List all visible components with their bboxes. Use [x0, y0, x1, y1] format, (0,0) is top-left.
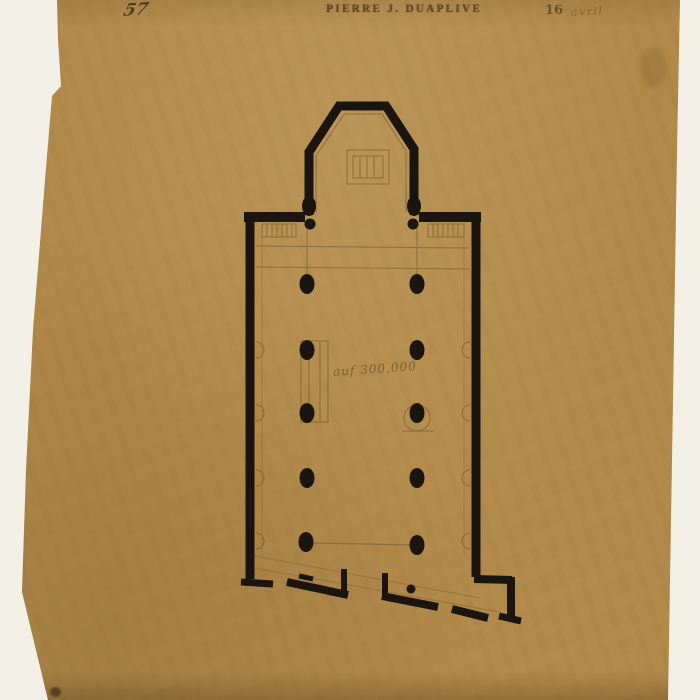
- church-floor-plan: [0, 0, 700, 700]
- right-wall-responds: [462, 342, 470, 549]
- column-row5-left: [299, 532, 314, 552]
- left-wall-foot: [241, 582, 273, 584]
- paper-smudge: [640, 48, 666, 88]
- column-row2-left: [300, 340, 315, 360]
- column-row4-left: [300, 468, 315, 488]
- facade-segment-3: [452, 609, 488, 618]
- ink-stain: [50, 687, 61, 697]
- column-row4-right: [410, 468, 425, 488]
- apse-base-pier-right: [407, 196, 421, 216]
- column-row1-right: [410, 274, 425, 294]
- chancel-opening-knob-left: [305, 219, 316, 230]
- altar-inner-outline: [353, 156, 383, 178]
- facade-segment-1: [287, 582, 348, 595]
- ink-fill-layer: [299, 196, 425, 594]
- facade-pier-bump: [299, 576, 313, 579]
- facade-segment-4: [499, 616, 521, 621]
- facade-segment-2: [382, 596, 438, 607]
- column-row2-right: [410, 340, 425, 360]
- column-row3-left: [300, 403, 315, 423]
- hatch-block-right-lines: [433, 224, 458, 237]
- altar-hatch-lines: [360, 156, 374, 178]
- wall-inner-face-lines: [262, 224, 464, 556]
- choir-step-lines: [256, 246, 469, 269]
- chancel-opening-knob-right: [408, 219, 419, 230]
- right-porch-step-horizontal: [474, 579, 512, 580]
- apse-base-pier-left: [302, 196, 316, 216]
- column-row1-left: [300, 274, 315, 294]
- rear-column-line: [313, 543, 411, 545]
- hatch-block-left-lines: [267, 224, 292, 237]
- left-wall-responds: [256, 342, 264, 549]
- column-row5-right: [410, 535, 425, 555]
- apse-wall: [309, 106, 414, 215]
- portal-pier-dot: [407, 585, 416, 594]
- column-row3-right: [410, 403, 425, 423]
- scanned-sheet-background: 57 PIERRE J. DUAPLIVE 16 avril: [0, 0, 700, 700]
